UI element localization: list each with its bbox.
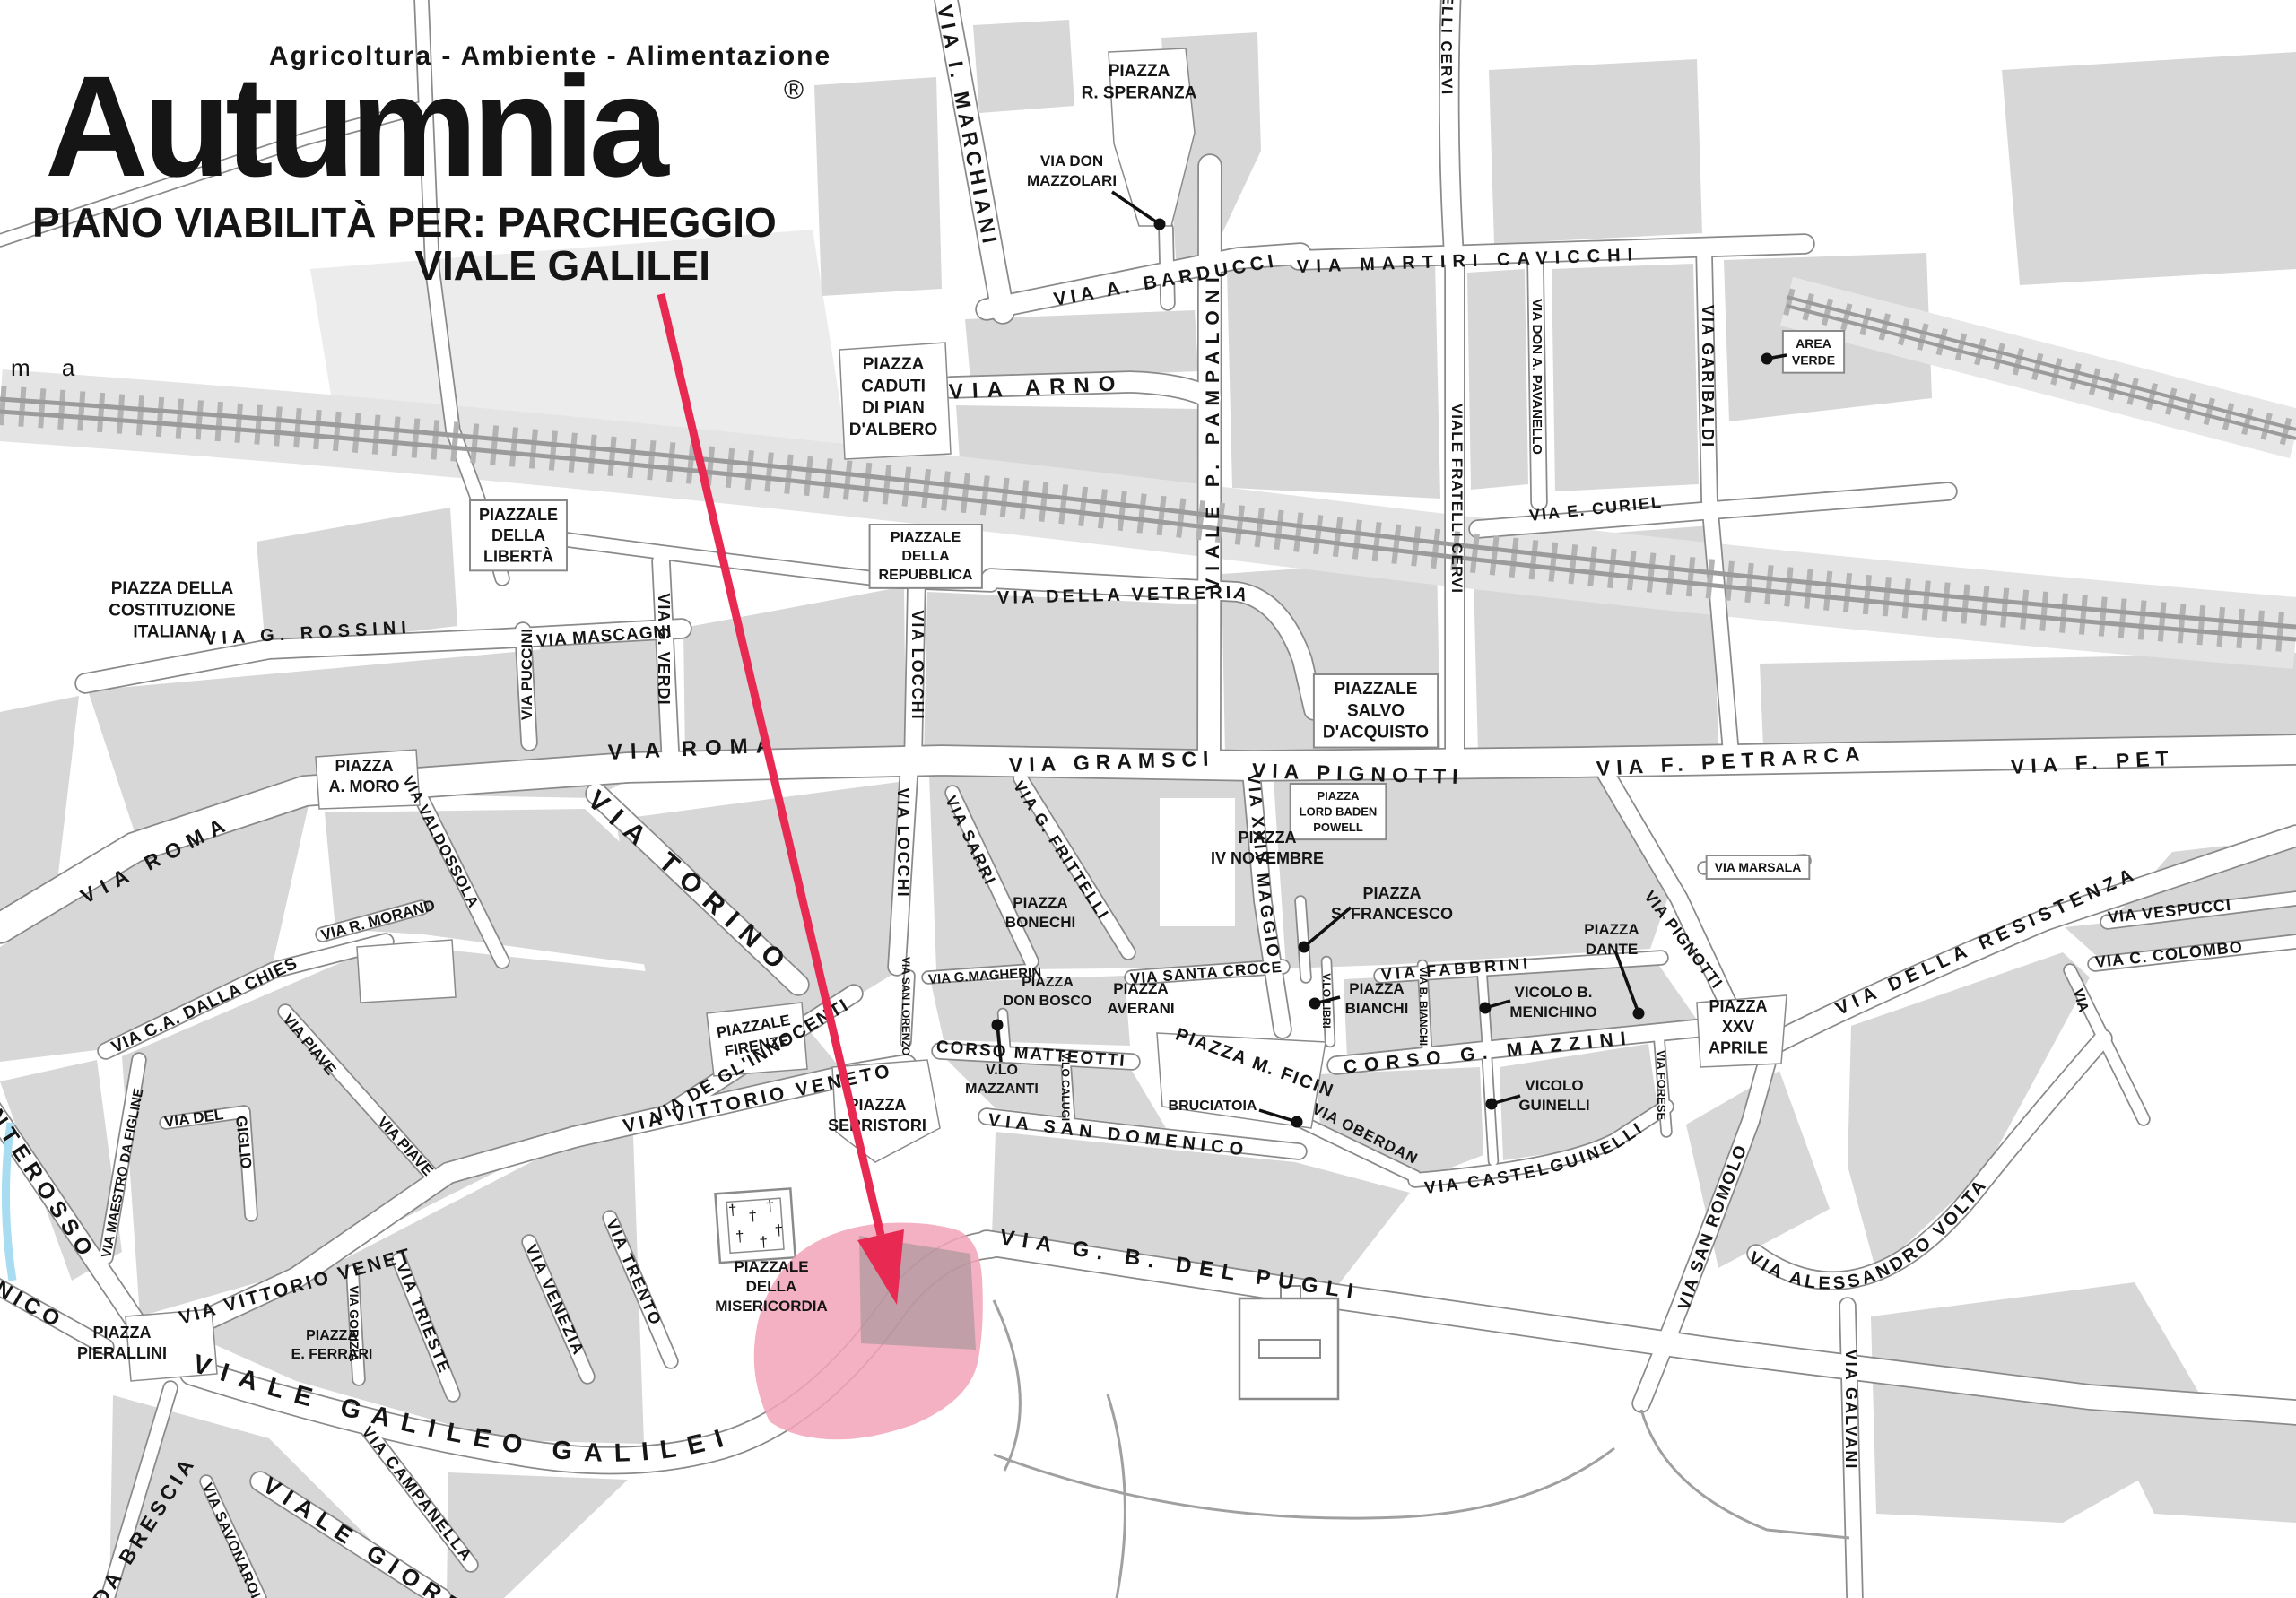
cross-icon: †: [735, 1228, 745, 1246]
pointer-dot: [1299, 942, 1310, 953]
pointer-dot: [1761, 353, 1773, 365]
street: [1300, 901, 1306, 977]
pointer-dot: [992, 1020, 1004, 1031]
city-block: [814, 77, 942, 296]
cemetery: ††††††: [715, 1188, 795, 1263]
map-title-line2: VIALE GALILEI: [414, 242, 710, 289]
city-block: [2002, 52, 2296, 285]
city-block: [973, 20, 1074, 113]
street-viale-fratelli-cervi: VIALE FRATELLI CERVI: [1448, 404, 1465, 594]
street-via-marsala: VIA MARSALA: [1715, 860, 1802, 874]
cross-icon: †: [774, 1221, 784, 1239]
place-bruciatoia: BRUCIATOIA: [1169, 1099, 1257, 1114]
map-title-line1: PIANO VIABILITÀ PER: PARCHEGGIO: [32, 199, 777, 246]
city-block: [683, 586, 906, 760]
city-block: [540, 637, 658, 741]
street-via-forese: VIA FORESE: [1655, 1050, 1668, 1121]
city-block: [1227, 260, 1440, 499]
city-block: [1467, 269, 1528, 490]
school-building: [1239, 1286, 1338, 1399]
street-vlo-calugi: V.LO CALUGI: [1059, 1053, 1072, 1121]
cross-icon: †: [748, 1207, 758, 1225]
pointer-dot: [1633, 1008, 1645, 1020]
pointer-dot: [1291, 1116, 1303, 1128]
pointer-dot: [1480, 1003, 1492, 1014]
autumnia-logo: Autumnia: [45, 46, 670, 206]
cross-icon: †: [765, 1197, 775, 1215]
street-via-locchi-lower: VIA LOCCHI: [894, 787, 912, 898]
cross-icon: †: [727, 1202, 737, 1220]
registered-mark-icon: ®: [784, 75, 804, 105]
street-via-locchi-upper: VIA LOCCHI: [909, 610, 926, 720]
city-block: [1760, 653, 2296, 748]
city-block: [1552, 264, 1699, 491]
street-via-san-lorenzo: VIA SAN LORENZO: [900, 957, 912, 1055]
street-viale-p-pampaloni: VIALE P. PAMPALONI: [1203, 270, 1223, 591]
pointer-dot: [1309, 998, 1321, 1010]
street-fratelli-cervi-top: ELLI CERVI: [1438, 0, 1457, 97]
street-via-galvani: VIA GALVANI: [1842, 1350, 1860, 1471]
street-via-g-verdi: VIA G. VERDI: [655, 593, 673, 705]
city-block: [447, 1472, 628, 1598]
place-via-don-mazzolari: VIA DONMAZZOLARI: [1027, 152, 1117, 189]
piazza-area: [357, 940, 456, 1003]
street-via-puccini: VIA PUCCINI: [518, 629, 535, 720]
pointer-dot: [1486, 1099, 1498, 1110]
label-roma-cutoff: m a: [11, 354, 87, 381]
city-block: [1489, 59, 1702, 244]
pointer-dot: [1154, 219, 1166, 230]
cross-icon: †: [759, 1233, 769, 1251]
city-block: [924, 592, 1200, 757]
street-via-don-a-pavanello: VIA DON A. PAVANELLO: [1529, 299, 1544, 455]
street-via-garibaldi: VIA GARIBALDI: [1699, 305, 1717, 448]
city-map: †††††† m aVIA I. MARCHIANIVIA A. BARDUCC…: [0, 0, 2296, 1598]
street: [1449, 0, 1455, 764]
